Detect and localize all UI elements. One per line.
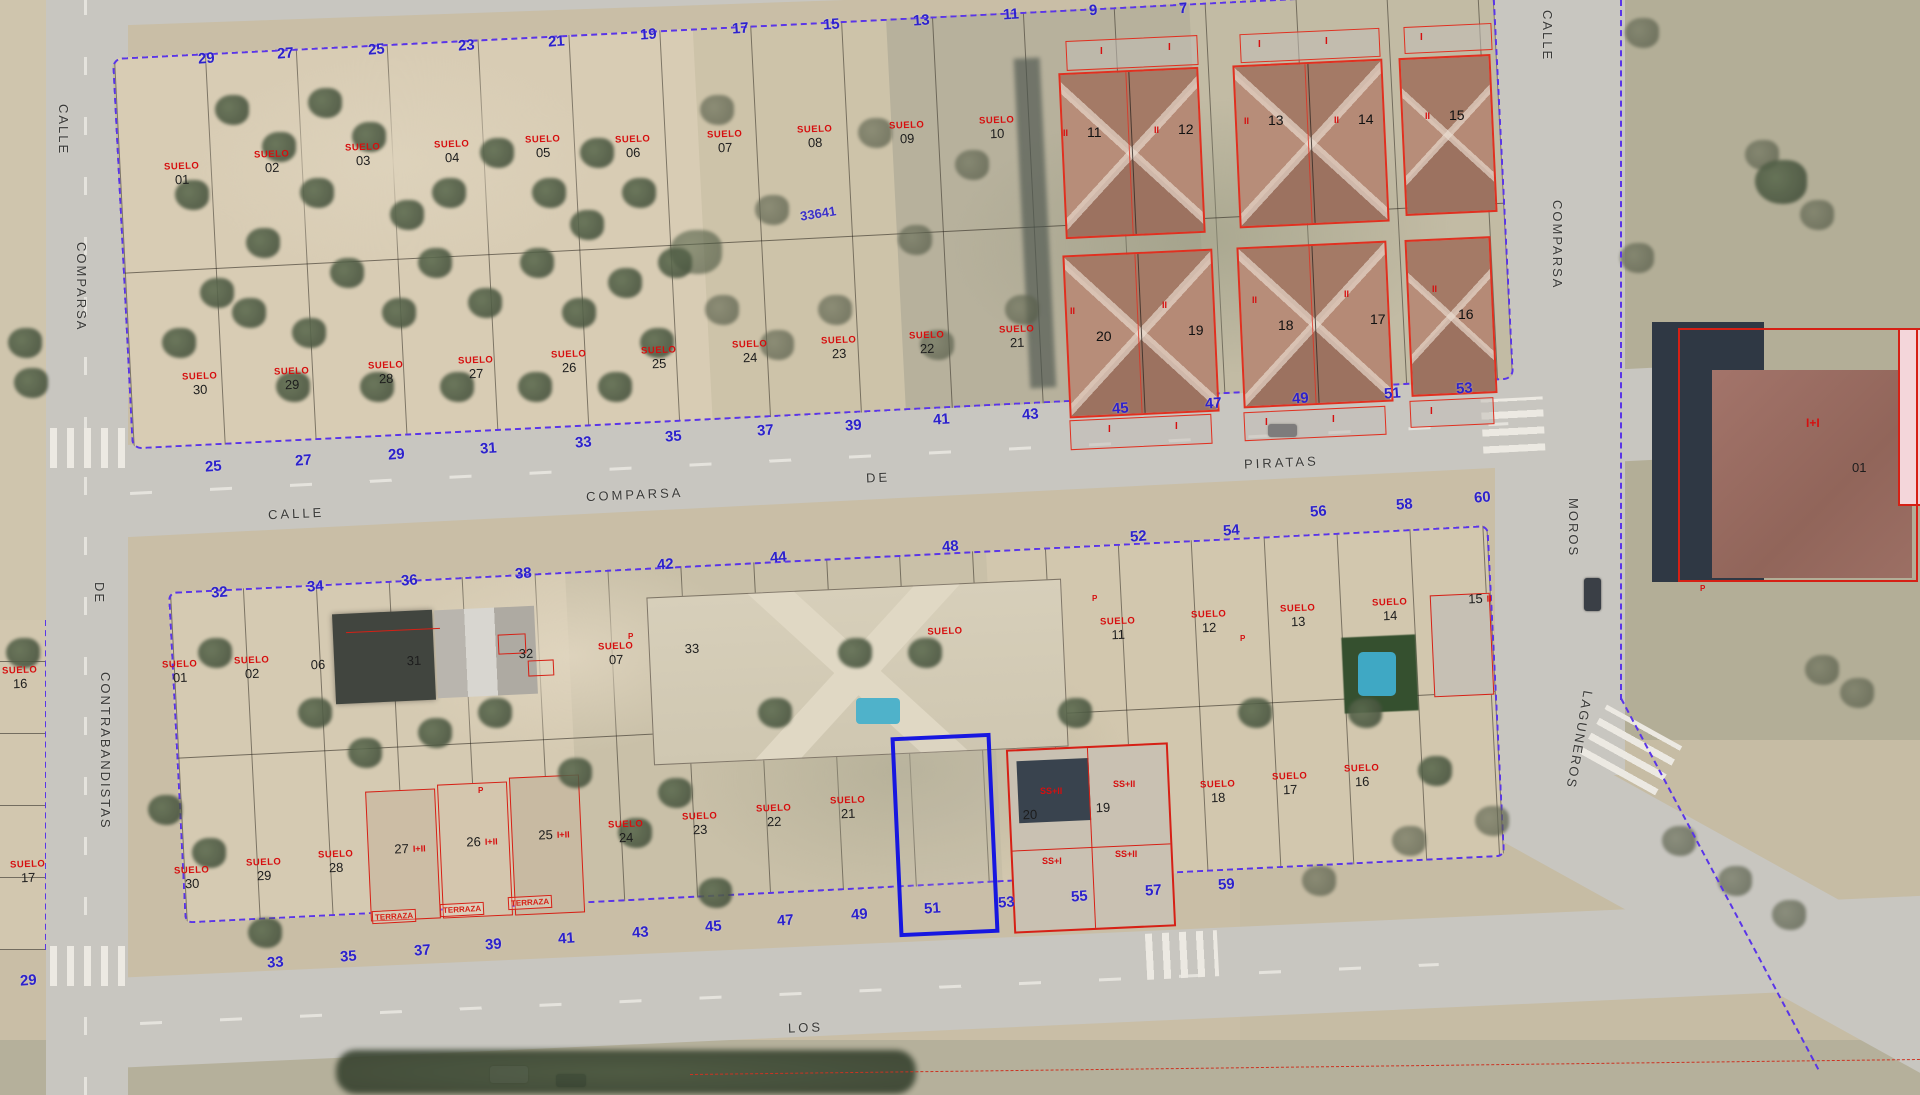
block1-parcel-label: SUELO28 [368,360,404,387]
block2-parcel-label: SUELO16 [1344,763,1380,790]
block1-north-number: 29 [197,49,215,67]
tree [1238,698,1272,728]
large-building-red-outline [1678,328,1918,582]
block2-parcel-label: SUELO [927,626,963,638]
block1-parcel-label: SUELO07 [707,129,743,156]
street-moros-right: MOROS [1566,498,1581,557]
block1-south-number: 35 [664,427,682,445]
block1-parcel-label: SUELO09 [889,120,925,147]
tree [1800,200,1834,230]
street-comparsa-right: COMPARSA [1550,200,1565,289]
p-marker: P [478,786,483,795]
crosswalk-left-road-mid [50,428,126,468]
block2-north-number: 60 [1473,488,1491,506]
block2-south-number: 33 [266,953,284,971]
block1-south-number: 53 [1455,379,1473,397]
block2-north-number: 34 [306,577,324,595]
block2-parcel-label: SUELO22 [756,803,792,830]
block2-south-number: 47 [776,911,794,929]
tree [162,328,196,358]
block2-south-number: 55 [1070,887,1088,905]
basement-floor-label: SS+II [1040,786,1062,796]
tree [14,368,48,398]
house-roof-15 [1398,54,1497,216]
block2-parcel-label: SUELO24 [608,819,644,846]
tree [562,298,596,328]
block2-south-number: 49 [850,905,868,923]
building-floor-label-right: I+I [1806,416,1820,430]
block2-north-number: 38 [514,564,532,582]
terrace-box: TERRAZA [440,902,485,917]
block2-parcel-label: SUELO18 [1200,779,1236,806]
block1-south-number: 49 [1291,389,1309,407]
block2-parcel-label: 27I+II [394,841,426,857]
block2-north-number: 56 [1309,502,1327,520]
block2-south-number: 53 [997,893,1015,911]
block2-south-number: 35 [339,947,357,965]
block1-north-number: 15 [822,15,840,33]
house-number: 13 [1268,112,1284,128]
street-calle-left: CALLE [56,104,71,155]
lane-dashes-left-road [84,0,87,1095]
tree [1625,18,1659,48]
tree [432,178,466,208]
porch-mark: I [1265,417,1268,428]
block2-parcel-label: SUELO13 [1280,603,1316,630]
street-de-left: DE [92,582,107,604]
pool-parcel-14 [1358,652,1396,696]
block2-south-number: 51 [923,899,941,917]
tree [1005,295,1039,325]
building-num-right: 01 [1852,460,1866,475]
block1-north-number: 9 [1088,2,1098,20]
block2-north-number: 54 [1222,521,1240,539]
house-number: 17 [1370,311,1386,327]
house-porch-11-12 [1065,35,1198,71]
p-marker: P [1240,634,1245,643]
house-porch-15 [1403,23,1492,54]
tree [580,138,614,168]
house-number: 18 [1278,317,1294,333]
block1-parcel-label: SUELO05 [525,134,561,161]
tree [1840,678,1874,708]
block2-south-number: 59 [1217,875,1235,893]
tree [1772,900,1806,930]
floor-mark: II [1063,128,1068,138]
block2-parcel-label: 33 [685,642,700,657]
porch-mark: I [1332,414,1335,425]
tree [292,318,326,348]
block2-parcel-label: 26I+II [466,834,498,850]
block2-parcel-label: SUELO23 [682,811,718,838]
block2-parcel-label: SUELO07 [598,641,634,668]
block1-parcel-label: SUELO30 [182,371,218,398]
tree [1348,698,1382,728]
block2-south-number: 43 [631,923,649,941]
floor-mark: II [1162,300,1167,310]
block2-parcel-label: 06 [311,658,326,673]
porch-mark: I [1168,42,1171,53]
block2-parcel-label: 19 [1096,801,1111,816]
block1-north-number: 11 [1002,5,1019,23]
block2-parcel-label: 25I+II [538,827,570,843]
block1-south-number: 25 [204,457,222,475]
crosswalk-bottom-road [1145,930,1219,980]
tree [1805,655,1839,685]
house-number: 20 [1096,328,1112,344]
tree [698,878,732,908]
tree [570,210,604,240]
tree [246,228,280,258]
tree [1392,826,1426,856]
block1-south-number: 27 [294,451,312,469]
tree [232,298,266,328]
house-number: 11 [1087,124,1102,140]
selected-parcel-highlight[interactable] [891,733,1000,937]
block2-parcel-label: SUELO02 [234,655,270,682]
block1-south-number: 47 [1204,394,1222,412]
block1-parcel-label: SUELO08 [797,124,833,151]
tree [858,118,892,148]
block1-parcel-label: SUELO04 [434,139,470,166]
street-calle-right: CALLE [1540,10,1555,61]
road-right-vertical [1495,0,1625,775]
house-roof-11-12 [1058,67,1205,239]
porch-mark: I [1430,406,1433,417]
tree [148,795,182,825]
block1-parcel-label: SUELO27 [458,355,494,382]
block2-parcel-label: SUELO29 [246,857,282,884]
floor-mark: II [1425,111,1430,121]
block1-south-number: 37 [756,421,774,439]
block2-north-number: 48 [941,537,959,555]
block1-parcel-label: SUELO21 [999,324,1035,351]
left-edge-parcel-label: SUELO17 [10,859,46,886]
block1-south-number: 51 [1383,384,1401,402]
floor-mark: II [1070,306,1075,316]
basement-floor-label: SS+I [1042,856,1062,866]
block1-parcel-label: SUELO29 [274,366,310,393]
tree [478,698,512,728]
basement-floor-label: SS+II [1113,779,1135,789]
tree [758,698,792,728]
tree [8,328,42,358]
tree [838,638,872,668]
building-parcel-15 [1430,593,1495,698]
tree [670,230,722,274]
block2-south-number: 45 [704,917,722,935]
tree [1755,160,1807,204]
tree [705,295,739,325]
floor-mark: II [1252,295,1257,305]
p-marker: P [628,632,633,641]
crosswalk-left-road-bottom [50,946,126,986]
tree [558,758,592,788]
house-number: 14 [1358,111,1374,127]
tree [418,248,452,278]
tree [382,298,416,328]
block2-south-number: 57 [1144,881,1162,899]
block1-parcel-label: SUELO26 [551,349,587,376]
porch-mark: I [1108,424,1111,435]
street-contrabandistas-left: CONTRABANDISTAS [98,672,113,830]
tree [330,258,364,288]
house-number: 15 [1449,107,1465,123]
tree [418,718,452,748]
terrain-top-left-strip [0,0,48,640]
block2-parcel-label: SUELO21 [830,795,866,822]
tree [198,638,232,668]
block1-parcel-label: SUELO24 [732,339,768,366]
tree [348,738,382,768]
floor-mark: II [1334,115,1339,125]
block1-parcel-label: SUELO25 [641,345,677,372]
house-number: 12 [1178,121,1194,137]
road-left-vertical [46,0,128,1095]
tree [598,372,632,402]
tree [1302,866,1336,896]
block2-parcel-label: 31 [407,654,422,669]
car-right-road [1584,578,1601,611]
tree [520,248,554,278]
tree [955,150,989,180]
basement-floor-label: SS+II [1115,849,1137,859]
block1-south-number: 31 [479,439,497,457]
tree [818,295,852,325]
tree [700,95,734,125]
tree [658,778,692,808]
porch-mark: I [1100,46,1103,57]
block1-north-number: 25 [367,40,385,58]
house-ss [1006,742,1176,933]
red-outbuilding-32b [528,659,555,676]
block1-south-number: 41 [932,410,950,428]
left-edge-parcel-label: SUELO16 [2,665,38,692]
tree [200,278,234,308]
street-de-main: DE [866,469,891,485]
tree [1418,756,1452,786]
block2-north-number: 44 [769,548,787,566]
block2-parcel-label: SUELO12 [1191,609,1227,636]
tree [192,838,226,868]
block2-parcel-label: SUELO30 [174,865,210,892]
porch-mark: I [1258,39,1261,50]
tree [390,200,424,230]
terrace-box: TERRAZA [372,909,417,924]
block1-parcel-label: SUELO06 [615,134,651,161]
tree [468,288,502,318]
house-patio-20-19 [1069,414,1212,450]
block2-south-number: 41 [557,929,575,947]
block2-north-number: 58 [1395,495,1413,513]
block1-parcel-label: SUELO23 [821,335,857,362]
block2-parcel-label: 20 [1023,808,1038,823]
floor-mark: II [1432,284,1437,294]
block2-north-number: 36 [400,571,418,589]
house-roof-13-14 [1232,59,1389,229]
tree [898,225,932,255]
tree [755,195,789,225]
block1-south-number: 39 [844,416,862,434]
tree [518,372,552,402]
porch-mark: I [1175,421,1178,432]
block1-south-number: 43 [1021,405,1039,423]
blue-boundary-right-road [1620,0,1622,700]
floor-mark: II [1154,125,1159,135]
block1-south-number: 33 [574,433,592,451]
block1-parcel-label: SUELO10 [979,115,1015,142]
street-comparsa-left: COMPARSA [74,242,89,331]
corner-number-bottom-left: 29 [19,971,37,989]
swimming-pool [856,698,900,724]
p-marker: P [1092,594,1097,603]
p-marker: P [1700,584,1705,593]
tree [608,268,642,298]
block1-parcel-label: SUELO22 [909,330,945,357]
block1-north-number: 27 [276,44,294,62]
block2-parcel-label: SUELO11 [1100,616,1136,643]
house-number: 16 [1458,306,1474,322]
street-calle-main: CALLE [268,505,325,522]
block2-parcel-label: SUELO28 [318,849,354,876]
house-roof-16 [1404,236,1497,397]
block2-north-number: 42 [656,555,674,573]
block2-north-number: 52 [1129,527,1147,545]
tree [622,178,656,208]
block2-south-number: 37 [413,941,431,959]
block2-parcel-label: SUELO17 [1272,771,1308,798]
block2-parcel-label: SUELO01 [162,659,198,686]
block2-north-number: 32 [210,583,228,601]
house-number: 19 [1188,322,1204,338]
block1-parcel-label: SUELO02 [254,149,290,176]
block1-south-number: 45 [1111,399,1129,417]
block1-north-number: 21 [547,32,565,50]
block2-parcel-label: 15II [1468,592,1492,608]
tree [308,88,342,118]
tree [480,138,514,168]
block1-north-number: 13 [912,11,930,29]
tree [1058,698,1092,728]
block1-north-number: 17 [731,19,749,37]
tree [298,698,332,728]
tree [248,918,282,948]
house-patio-16 [1409,397,1494,428]
floor-mark: II [1344,289,1349,299]
tree [300,178,334,208]
floor-mark: II [1244,116,1249,126]
block2-parcel-label: 32 [519,647,534,662]
tree [215,95,249,125]
block2-south-number: 39 [484,935,502,953]
block1-north-number: 19 [639,25,657,43]
porch-mark: I [1325,36,1328,47]
block2-parcel-label: SUELO14 [1372,597,1408,624]
tree [1475,806,1509,836]
block1-north-number: 23 [457,36,475,54]
porch-mark: I [1420,32,1423,43]
cadastral-map-canvas[interactable]: CALLE COMPARSA DE CONTRABANDISTAS CALLE … [0,0,1920,1095]
block1-parcel-label: SUELO03 [345,142,381,169]
walled-parcel-courtyard [646,579,1068,766]
block1-south-number: 29 [387,445,405,463]
tree [532,178,566,208]
block1-parcel-label: SUELO01 [164,161,200,188]
street-los-bottom: LOS [788,1019,824,1035]
terrace-box: TERRAZA [508,895,553,910]
tree [908,638,942,668]
tree [1620,243,1654,273]
block1-north-number: 7 [1178,0,1188,17]
